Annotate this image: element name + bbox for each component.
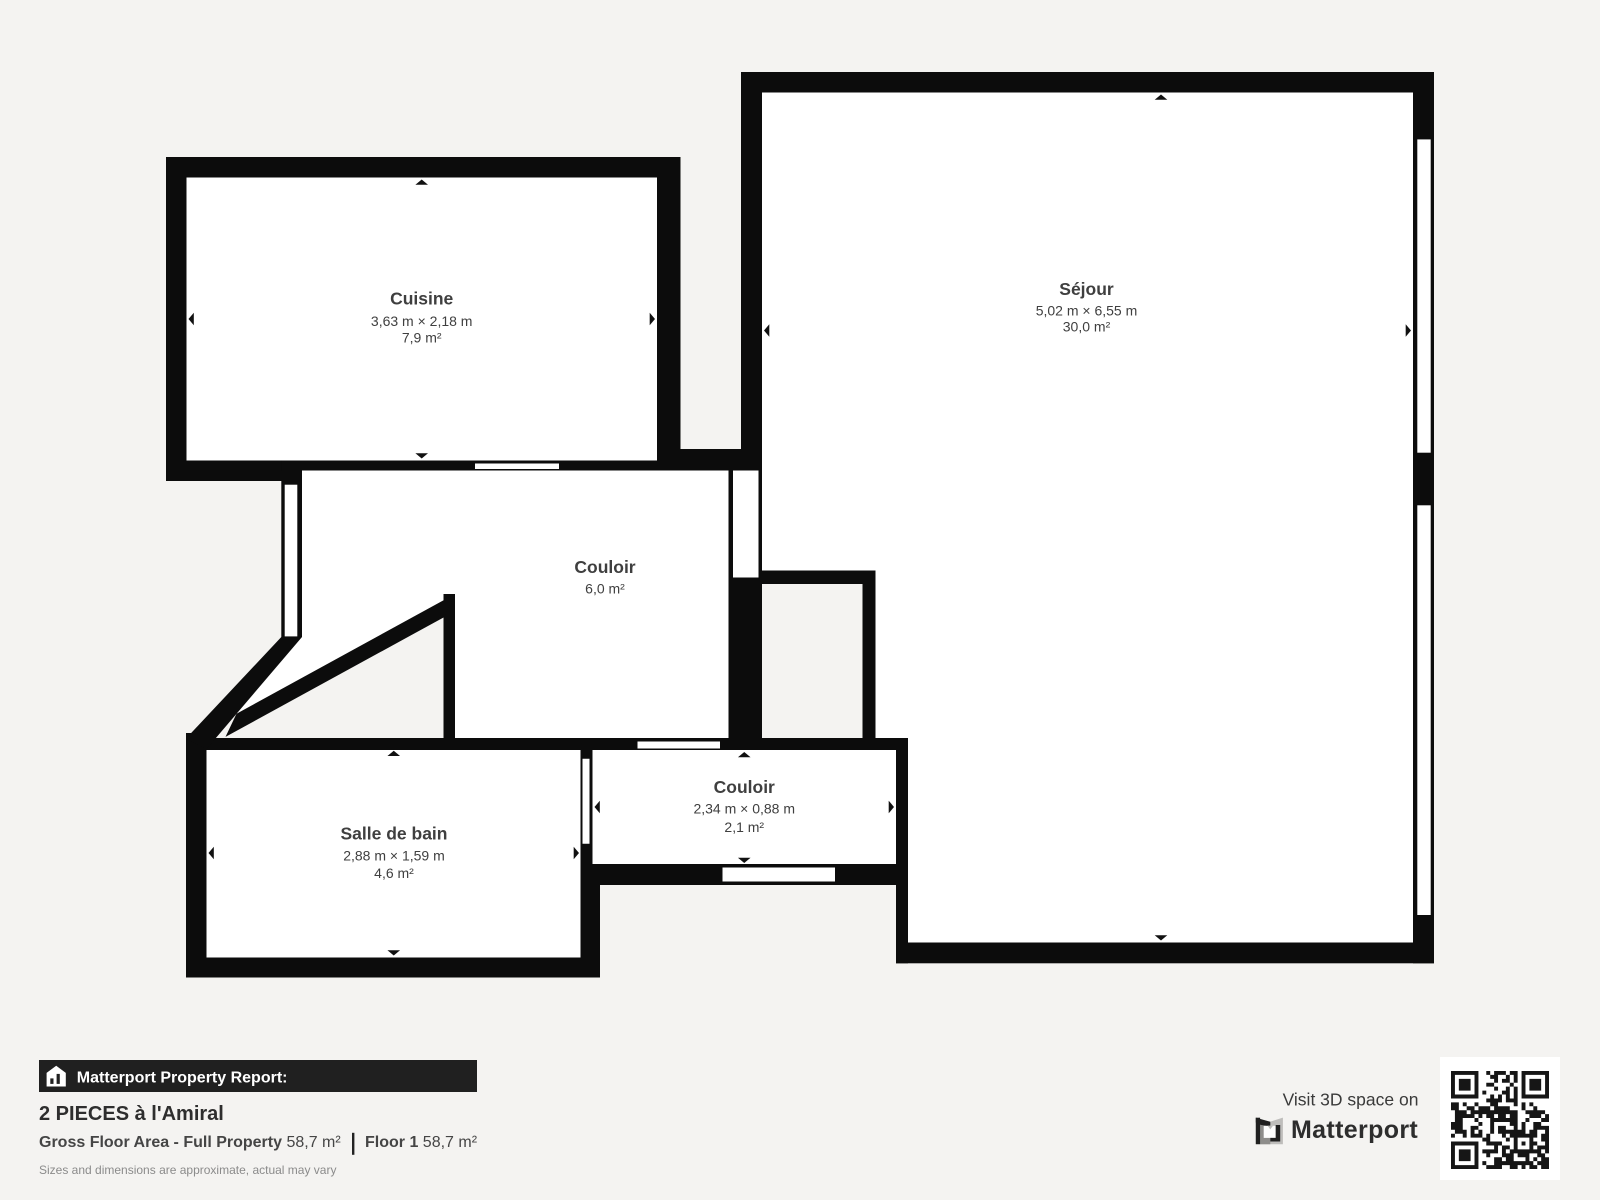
svg-text:Matterport Property Report:: Matterport Property Report: [77, 1070, 288, 1087]
svg-text:Floor 1 58,7 m²: Floor 1 58,7 m² [365, 1134, 478, 1151]
svg-text:Visit 3D space on: Visit 3D space on [1283, 1090, 1419, 1110]
svg-text:Cuisine: Cuisine [390, 289, 453, 309]
svg-text:Salle de bain: Salle de bain [341, 824, 448, 844]
svg-text:Séjour: Séjour [1059, 279, 1114, 299]
svg-text:Gross Floor Area - Full Proper: Gross Floor Area - Full Property 58,7 m² [39, 1134, 341, 1151]
svg-text:5,02 m × 6,55 m: 5,02 m × 6,55 m [1036, 302, 1138, 318]
svg-text:Couloir: Couloir [574, 557, 635, 577]
svg-text:Matterport: Matterport [1291, 1116, 1418, 1144]
svg-text:2 PIECES à l'Amiral: 2 PIECES à l'Amiral [39, 1103, 224, 1125]
svg-text:2,34 m × 0,88 m: 2,34 m × 0,88 m [693, 801, 795, 817]
svg-text:2,1 m²: 2,1 m² [724, 819, 764, 835]
svg-text:30,0 m²: 30,0 m² [1063, 319, 1111, 335]
svg-text:Couloir: Couloir [714, 777, 775, 797]
svg-text:6,0 m²: 6,0 m² [585, 581, 625, 597]
svg-text:7,9 m²: 7,9 m² [402, 330, 442, 346]
svg-text:2,88 m × 1,59 m: 2,88 m × 1,59 m [343, 847, 445, 863]
svg-text:3,63 m × 2,18 m: 3,63 m × 2,18 m [371, 313, 473, 329]
svg-text:Sizes and dimensions are appro: Sizes and dimensions are approximate, ac… [39, 1163, 336, 1177]
svg-text:4,6 m²: 4,6 m² [374, 865, 414, 881]
